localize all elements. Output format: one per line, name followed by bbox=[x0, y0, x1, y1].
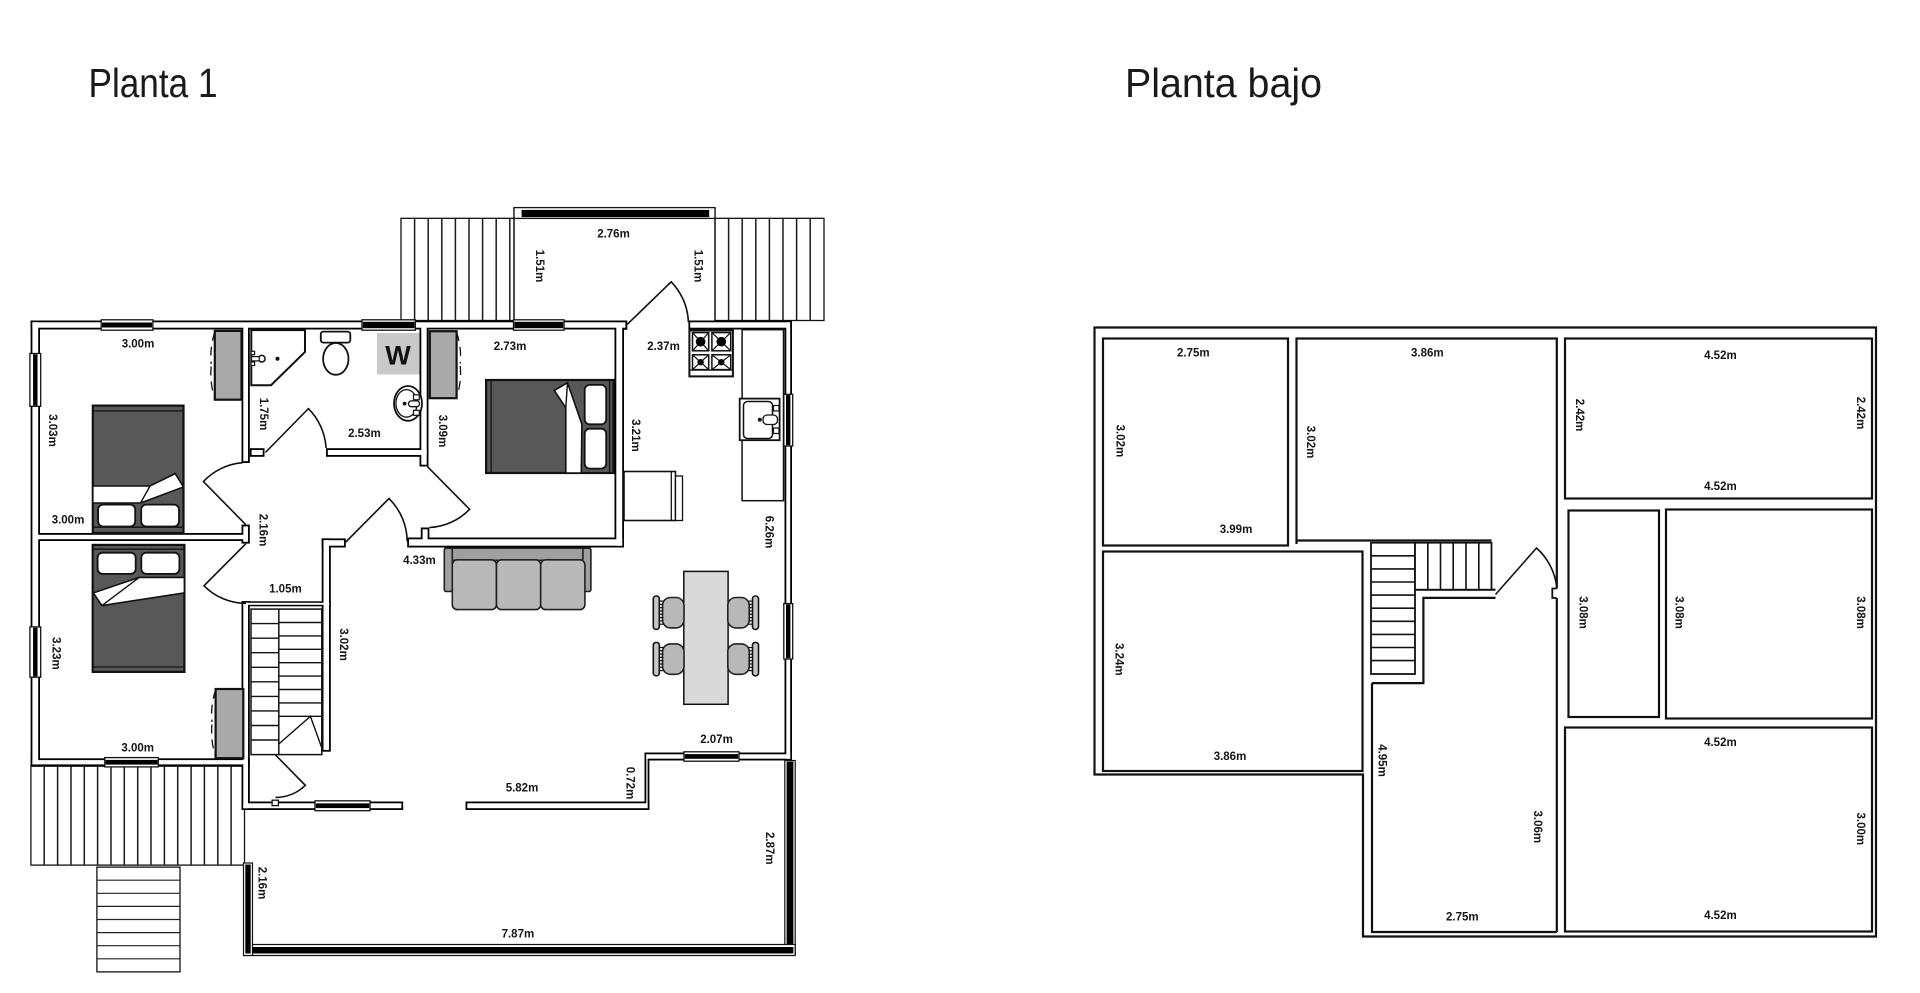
svg-text:4.95m: 4.95m bbox=[1375, 744, 1387, 777]
svg-text:5.82m: 5.82m bbox=[506, 782, 539, 794]
svg-text:1.75m: 1.75m bbox=[257, 398, 269, 431]
svg-text:3.02m: 3.02m bbox=[1304, 426, 1316, 459]
svg-text:2.73m: 2.73m bbox=[494, 341, 527, 353]
svg-text:2.42m: 2.42m bbox=[1573, 399, 1585, 432]
svg-text:0.72m: 0.72m bbox=[624, 767, 636, 800]
svg-text:2.53m: 2.53m bbox=[348, 428, 381, 440]
svg-text:6.26m: 6.26m bbox=[763, 516, 775, 549]
svg-text:Planta bajo: Planta bajo bbox=[1125, 60, 1322, 106]
svg-text:4.52m: 4.52m bbox=[1704, 350, 1737, 362]
svg-text:3.24m: 3.24m bbox=[1112, 643, 1124, 676]
svg-text:W: W bbox=[385, 341, 411, 371]
svg-text:3.23m: 3.23m bbox=[49, 637, 61, 670]
svg-text:2.07m: 2.07m bbox=[700, 734, 733, 746]
svg-text:3.03m: 3.03m bbox=[46, 414, 58, 447]
svg-text:2.75m: 2.75m bbox=[1446, 911, 1479, 923]
svg-text:4.33m: 4.33m bbox=[403, 555, 436, 567]
svg-text:3.00m: 3.00m bbox=[121, 742, 154, 754]
svg-text:3.86m: 3.86m bbox=[1214, 751, 1247, 763]
svg-text:2.87m: 2.87m bbox=[763, 832, 775, 865]
svg-text:3.09m: 3.09m bbox=[436, 415, 448, 448]
svg-text:3.02m: 3.02m bbox=[337, 628, 349, 661]
svg-text:2.75m: 2.75m bbox=[1177, 347, 1210, 359]
svg-text:3.86m: 3.86m bbox=[1411, 347, 1444, 359]
svg-text:1.51m: 1.51m bbox=[692, 250, 704, 283]
svg-text:2.16m: 2.16m bbox=[256, 514, 268, 547]
svg-text:2.76m: 2.76m bbox=[597, 229, 630, 241]
svg-text:2.16m: 2.16m bbox=[256, 867, 268, 900]
svg-text:4.52m: 4.52m bbox=[1704, 737, 1737, 749]
svg-text:7.87m: 7.87m bbox=[502, 929, 535, 941]
svg-text:3.08m: 3.08m bbox=[1854, 596, 1866, 629]
svg-text:Planta 1: Planta 1 bbox=[89, 60, 218, 106]
svg-text:3.08m: 3.08m bbox=[1576, 596, 1588, 629]
svg-text:1.51m: 1.51m bbox=[533, 250, 545, 283]
svg-text:3.02m: 3.02m bbox=[1114, 425, 1126, 458]
svg-text:3.21m: 3.21m bbox=[629, 419, 641, 452]
svg-text:3.99m: 3.99m bbox=[1220, 524, 1253, 536]
svg-text:2.37m: 2.37m bbox=[647, 341, 680, 353]
svg-text:3.00m: 3.00m bbox=[1854, 812, 1866, 845]
svg-text:3.00m: 3.00m bbox=[52, 515, 85, 527]
svg-text:3.06m: 3.06m bbox=[1531, 810, 1543, 843]
svg-text:3.00m: 3.00m bbox=[122, 339, 155, 351]
svg-text:1.05m: 1.05m bbox=[269, 583, 302, 595]
svg-text:2.42m: 2.42m bbox=[1854, 397, 1866, 430]
svg-text:4.52m: 4.52m bbox=[1704, 481, 1737, 493]
svg-text:4.52m: 4.52m bbox=[1704, 910, 1737, 922]
svg-text:3.08m: 3.08m bbox=[1673, 596, 1685, 629]
